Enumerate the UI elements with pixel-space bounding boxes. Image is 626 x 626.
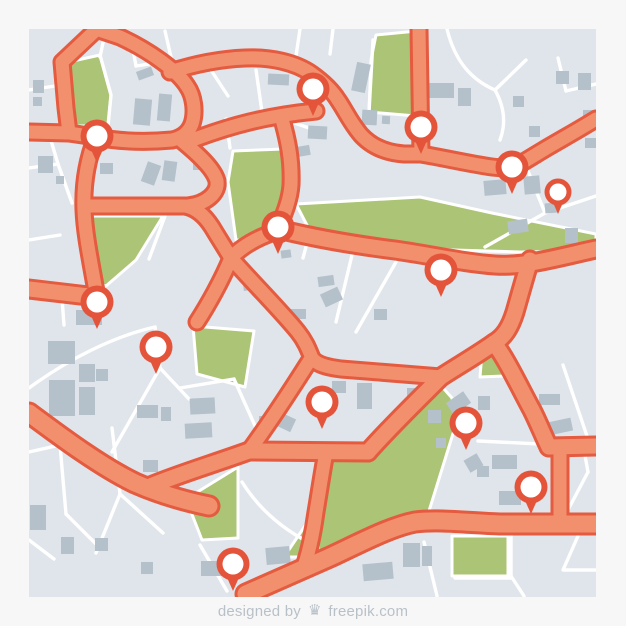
building [268, 73, 290, 85]
building [529, 126, 540, 137]
building [137, 405, 158, 418]
park-south-square [452, 536, 508, 576]
building [162, 160, 178, 182]
building [157, 93, 172, 121]
building [374, 309, 387, 320]
pin-center [411, 117, 432, 138]
building [33, 97, 42, 106]
building [477, 466, 489, 477]
building [100, 163, 113, 174]
building [483, 179, 506, 196]
pin-center [223, 554, 244, 575]
building [513, 96, 524, 107]
pin-center [502, 157, 523, 178]
pin-center [146, 337, 167, 358]
building [539, 394, 560, 405]
building [422, 546, 432, 566]
building [33, 80, 44, 93]
freepik-crown-icon: ♛ [308, 603, 321, 618]
building [265, 546, 290, 565]
pin-center [268, 217, 289, 238]
credit-footer: designed by ♛ freepik.com [0, 598, 626, 624]
building [362, 562, 393, 582]
pin-center [87, 126, 108, 147]
building [56, 176, 64, 184]
pin-center [550, 184, 567, 201]
pin-center [87, 292, 108, 313]
building [565, 228, 578, 243]
designed-by-text: designed by [218, 603, 301, 620]
map-layers [29, 29, 597, 597]
building [308, 126, 328, 140]
building [382, 116, 390, 124]
building [362, 110, 378, 126]
city-map-graphic [0, 0, 626, 626]
building [523, 175, 541, 194]
building [585, 138, 597, 148]
building [436, 438, 446, 448]
city-map-illustration [0, 0, 626, 626]
building [185, 422, 213, 438]
building [95, 538, 108, 551]
page-background: designed by ♛ freepik.com [0, 0, 626, 626]
building [141, 562, 153, 574]
building [96, 369, 108, 381]
building [30, 505, 46, 530]
building [79, 387, 95, 415]
pin-center [303, 79, 324, 100]
pin-center [431, 260, 452, 281]
building [556, 71, 569, 84]
building [143, 460, 158, 472]
building [507, 219, 529, 235]
building [133, 98, 152, 125]
building [357, 383, 372, 409]
pin-center [521, 477, 542, 498]
building [61, 537, 74, 554]
building [403, 543, 420, 567]
freepik-brand-link[interactable]: freepik.com [328, 603, 408, 620]
building [48, 341, 75, 364]
building [428, 83, 454, 98]
building [49, 380, 75, 416]
pin-center [312, 392, 333, 413]
building [161, 407, 171, 421]
building [492, 455, 517, 469]
building [38, 156, 53, 173]
pin-center [456, 413, 477, 434]
building [79, 364, 95, 382]
building [478, 396, 490, 410]
building [578, 73, 591, 90]
building [428, 410, 441, 423]
building [190, 397, 216, 414]
building [458, 88, 471, 106]
j3-horizontal [249, 451, 368, 452]
building [280, 249, 291, 258]
